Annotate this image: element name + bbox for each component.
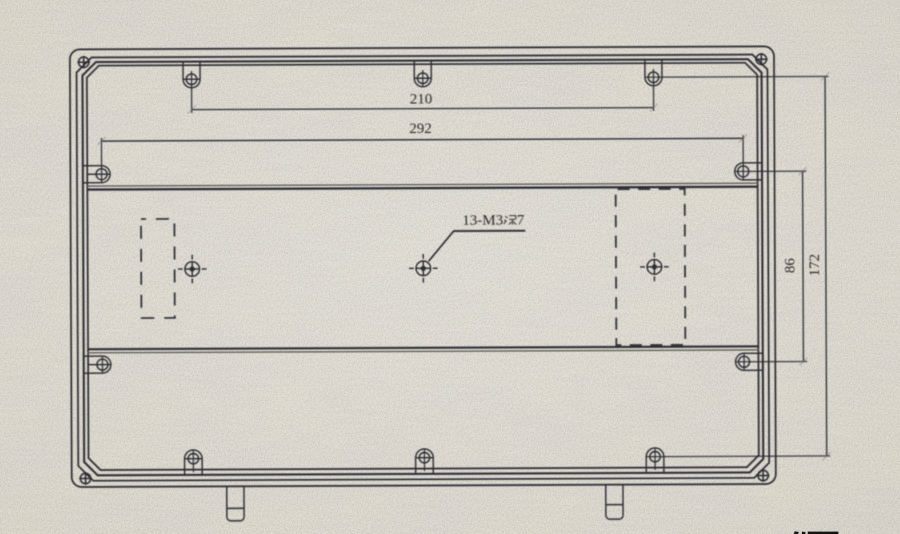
svg-text:210: 210 xyxy=(410,91,433,107)
svg-text:86: 86 xyxy=(783,258,799,274)
svg-text:7: 7 xyxy=(517,212,525,228)
svg-text:292: 292 xyxy=(409,121,432,137)
svg-text:172: 172 xyxy=(807,254,823,277)
svg-text:13-M3: 13-M3 xyxy=(462,213,503,229)
